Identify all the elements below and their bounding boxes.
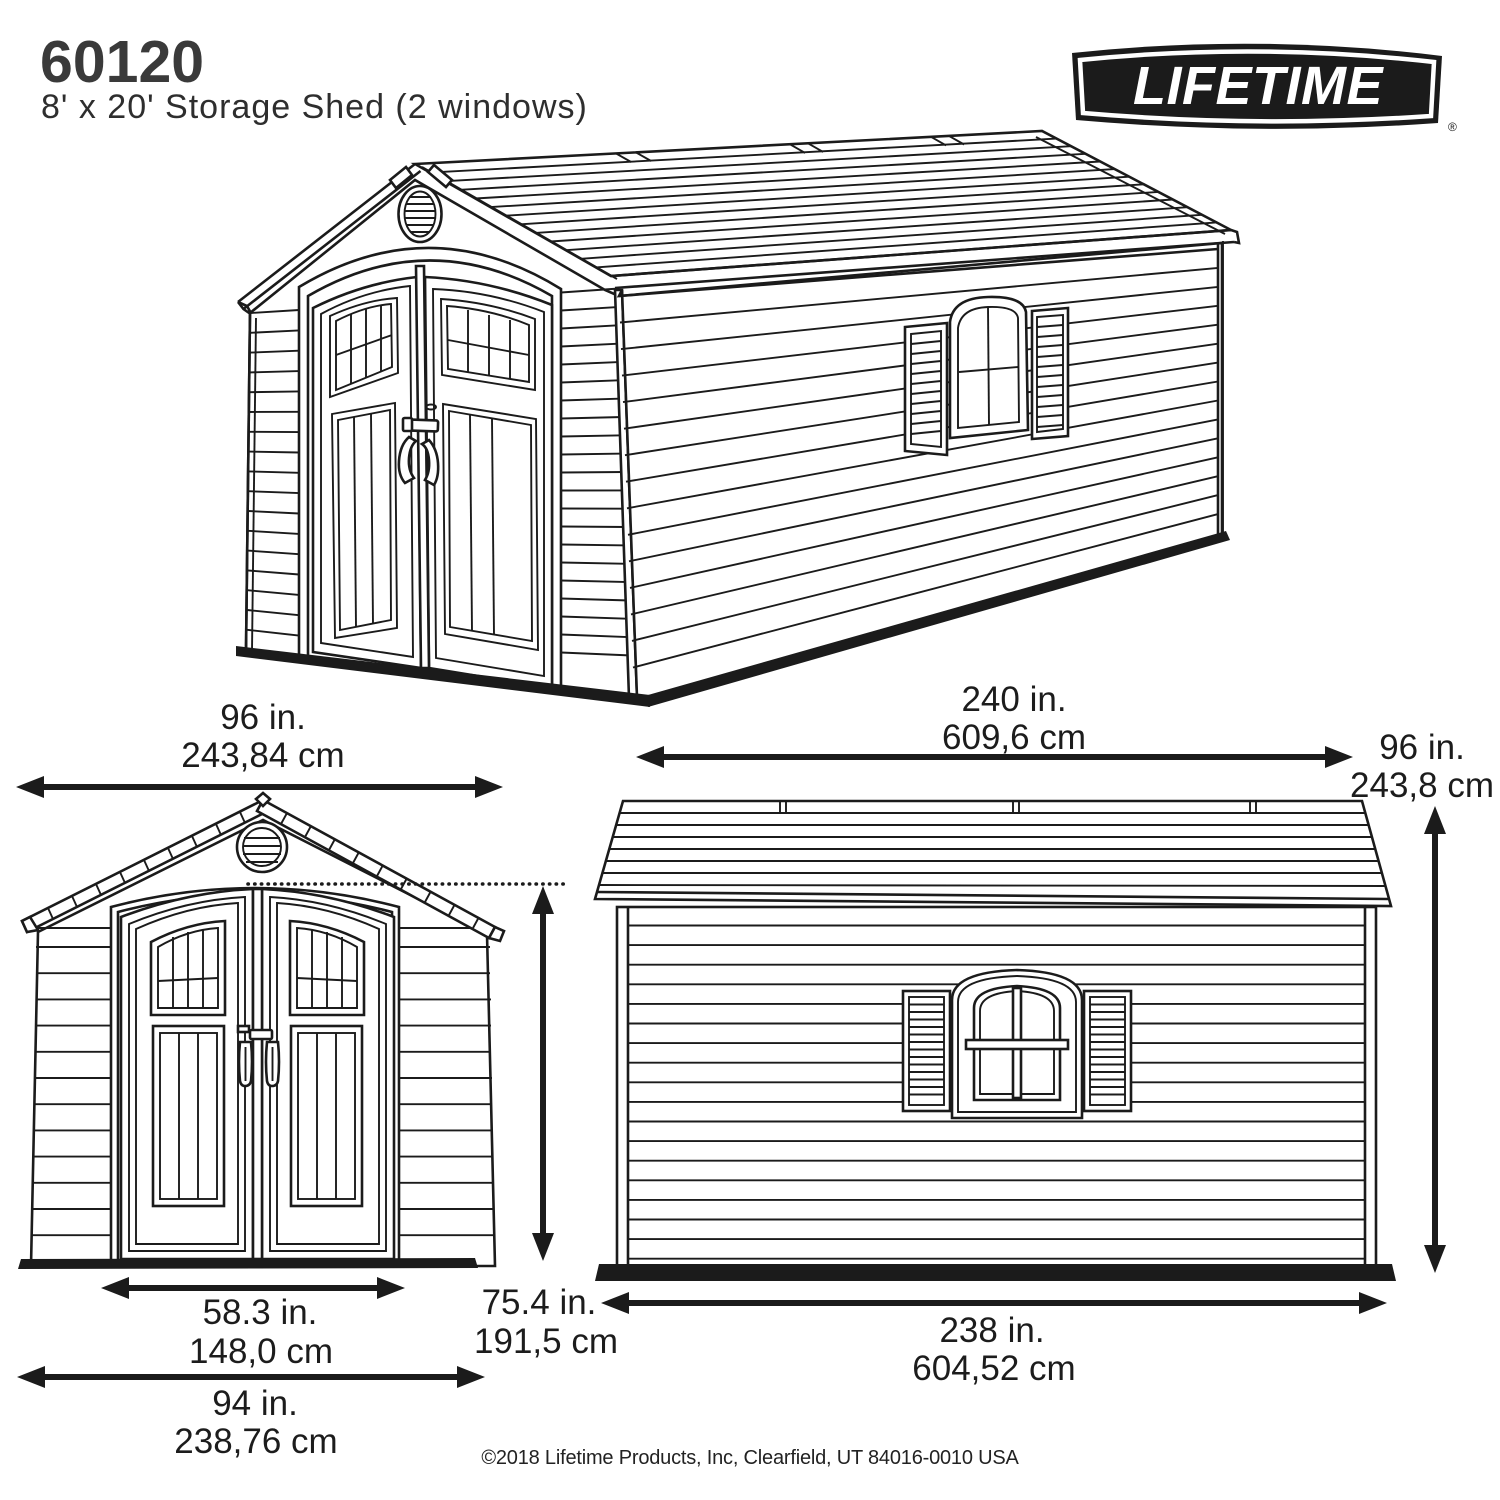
svg-text:94 in.: 94 in. (212, 1384, 298, 1423)
svg-text:8' x 20' Storage Shed (2 windo: 8' x 20' Storage Shed (2 windows) (41, 88, 588, 126)
svg-text:191,5 cm: 191,5 cm (474, 1322, 618, 1361)
svg-text:96 in.: 96 in. (220, 698, 306, 737)
svg-text:238,76 cm: 238,76 cm (174, 1422, 337, 1461)
svg-text:®: ® (1448, 120, 1457, 134)
svg-text:75.4 in.: 75.4 in. (482, 1283, 597, 1322)
svg-text:240 in.: 240 in. (961, 680, 1066, 719)
svg-text:©2018 Lifetime Products, Inc,: ©2018 Lifetime Products, Inc, Clearfield… (481, 1447, 1019, 1469)
svg-text:60120: 60120 (40, 29, 204, 95)
svg-text:609,6 cm: 609,6 cm (942, 718, 1086, 757)
svg-text:58.3 in.: 58.3 in. (203, 1293, 318, 1332)
svg-text:LIFETIME: LIFETIME (1133, 56, 1384, 116)
svg-text:604,52 cm: 604,52 cm (912, 1349, 1075, 1388)
svg-text:243,8 cm: 243,8 cm (1350, 766, 1494, 805)
svg-text:238 in.: 238 in. (939, 1311, 1044, 1350)
svg-text:96 in.: 96 in. (1379, 728, 1465, 767)
svg-text:148,0 cm: 148,0 cm (189, 1332, 333, 1371)
svg-text:243,84 cm: 243,84 cm (181, 736, 344, 775)
